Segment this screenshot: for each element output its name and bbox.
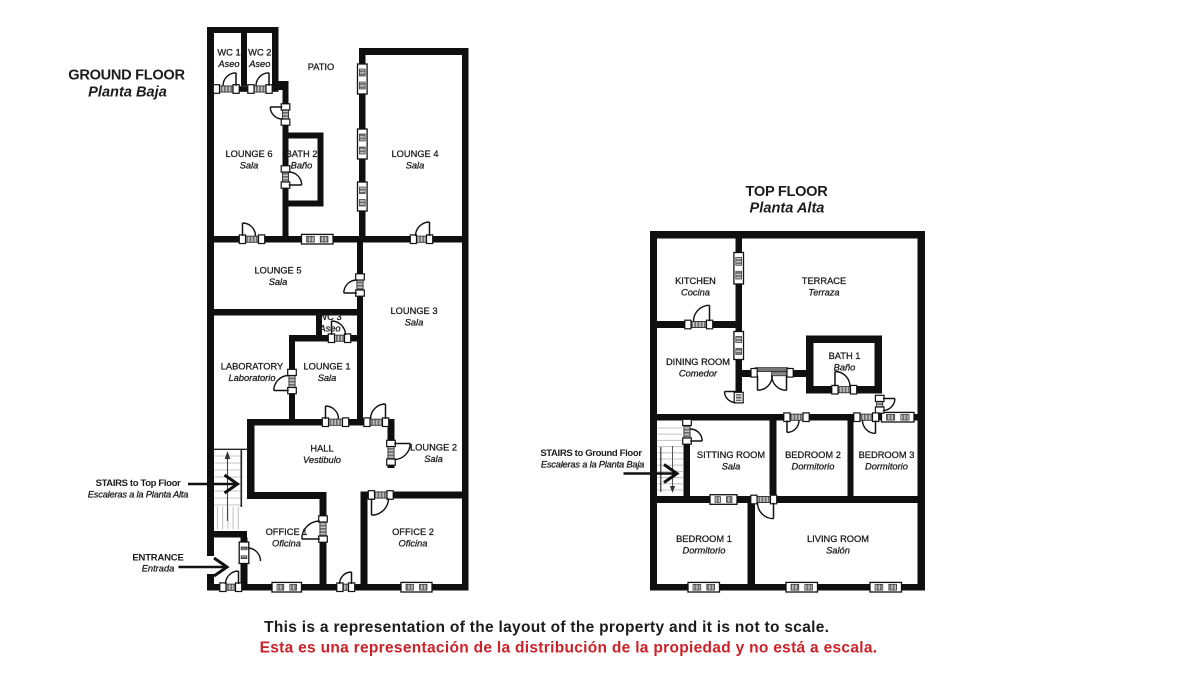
- svg-text:Laboratorio: Laboratorio: [228, 373, 275, 383]
- svg-text:Escaleras a la Planta Baja: Escaleras a la Planta Baja: [541, 460, 644, 470]
- svg-text:Sala: Sala: [318, 373, 337, 383]
- svg-text:BEDROOM 2: BEDROOM 2: [785, 450, 841, 460]
- svg-text:Sala: Sala: [405, 317, 424, 327]
- svg-text:LOUNGE 4: LOUNGE 4: [391, 149, 438, 159]
- svg-text:PATIO: PATIO: [308, 62, 335, 72]
- svg-text:LOUNGE 5: LOUNGE 5: [254, 266, 301, 276]
- svg-text:SITTING ROOM: SITTING ROOM: [697, 450, 765, 460]
- svg-text:LOUNGE 2: LOUNGE 2: [410, 443, 457, 453]
- svg-text:DINING ROOM: DINING ROOM: [666, 357, 730, 367]
- svg-text:LOUNGE 1: LOUNGE 1: [303, 362, 350, 372]
- svg-text:Dormitorio: Dormitorio: [865, 461, 908, 471]
- svg-text:Salón: Salón: [826, 545, 850, 555]
- svg-text:Sala: Sala: [406, 160, 425, 170]
- svg-text:BEDROOM 1: BEDROOM 1: [676, 534, 732, 544]
- svg-text:LIVING ROOM: LIVING ROOM: [807, 534, 869, 544]
- svg-text:Terraza: Terraza: [808, 287, 839, 297]
- svg-text:OFFICE 2: OFFICE 2: [392, 527, 434, 537]
- svg-text:Aseo: Aseo: [248, 59, 270, 69]
- svg-text:Planta Alta: Planta Alta: [750, 201, 825, 217]
- svg-text:GROUND FLOOR: GROUND FLOOR: [68, 68, 185, 84]
- svg-text:HALL: HALL: [310, 444, 333, 454]
- svg-text:LOUNGE 3: LOUNGE 3: [390, 306, 437, 316]
- svg-text:Sala: Sala: [722, 461, 741, 471]
- svg-text:STAIRS to Top Floor: STAIRS to Top Floor: [96, 478, 181, 489]
- svg-text:Sala: Sala: [424, 454, 443, 464]
- svg-text:Entrada: Entrada: [142, 564, 175, 574]
- svg-text:Oficina: Oficina: [399, 538, 428, 548]
- svg-text:STAIRS to Ground Floor: STAIRS to Ground Floor: [540, 448, 642, 459]
- svg-text:Planta Baja: Planta Baja: [88, 85, 167, 101]
- svg-text:Oficina: Oficina: [272, 538, 301, 548]
- svg-text:BATH 2: BATH 2: [286, 149, 318, 159]
- svg-text:This is a representation of th: This is a representation of the layout o…: [264, 619, 829, 636]
- svg-text:BEDROOM 3: BEDROOM 3: [859, 450, 915, 460]
- svg-text:WC 2: WC 2: [248, 48, 271, 58]
- svg-text:BATH 1: BATH 1: [829, 351, 861, 361]
- svg-text:Baño: Baño: [834, 362, 856, 372]
- svg-text:OFFICE 1: OFFICE 1: [266, 527, 308, 537]
- svg-text:Comedor: Comedor: [679, 368, 718, 378]
- svg-text:Sala: Sala: [240, 160, 259, 170]
- svg-text:TERRACE: TERRACE: [802, 276, 846, 286]
- svg-text:WC 1: WC 1: [217, 48, 240, 58]
- svg-text:ENTRANCE: ENTRANCE: [132, 553, 183, 564]
- svg-text:Cocina: Cocina: [681, 287, 710, 297]
- svg-text:LOUNGE 6: LOUNGE 6: [225, 149, 272, 159]
- svg-text:Dormitorio: Dormitorio: [792, 461, 835, 471]
- svg-text:WC 3: WC 3: [318, 312, 341, 322]
- svg-text:TOP FLOOR: TOP FLOOR: [746, 184, 829, 200]
- svg-text:Escaleras a la Planta Alta: Escaleras a la Planta Alta: [88, 489, 188, 499]
- svg-text:Baño: Baño: [291, 160, 313, 170]
- svg-text:Esta es una representación de: Esta es una representación de la distrib…: [260, 640, 878, 657]
- svg-text:Sala: Sala: [269, 277, 288, 287]
- svg-text:KITCHEN: KITCHEN: [675, 276, 716, 286]
- svg-text:Dormitorio: Dormitorio: [683, 545, 726, 555]
- svg-text:Aseo: Aseo: [217, 59, 239, 69]
- svg-text:Vestibulo: Vestibulo: [303, 455, 341, 465]
- svg-text:Aseo: Aseo: [318, 323, 340, 333]
- svg-text:LABORATORY: LABORATORY: [221, 362, 284, 372]
